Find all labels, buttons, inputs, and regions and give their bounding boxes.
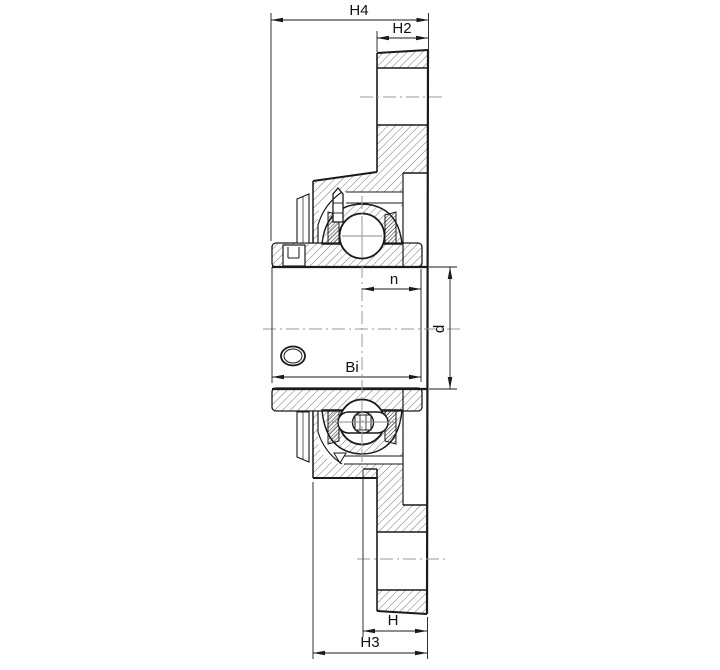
set-screw-end-view — [338, 412, 388, 433]
set-screw-section — [283, 245, 305, 266]
flange-mounting-face — [427, 50, 428, 614]
bore-opening — [272, 243, 423, 411]
dim-label-h3: H3 — [360, 634, 379, 651]
grease-fitting — [333, 188, 343, 222]
seal-top-right — [385, 212, 396, 244]
drawing-canvas: H4 H2 n d Bi H H3 — [0, 0, 720, 670]
bolt-hole-bottom — [377, 532, 427, 590]
slinger-top — [297, 194, 309, 243]
dim-label-bi: Bi — [345, 359, 358, 376]
bearing-section-drawing: H4 H2 n d Bi H H3 — [0, 0, 720, 670]
slinger-bottom — [297, 412, 309, 462]
dim-label-h4: H4 — [349, 2, 368, 19]
dim-label-h2: H2 — [392, 20, 411, 37]
dim-label-h: H — [388, 612, 399, 629]
dim-label-n: n — [390, 271, 398, 288]
seal-bottom-left — [328, 410, 339, 444]
dim-label-d: d — [431, 325, 448, 333]
